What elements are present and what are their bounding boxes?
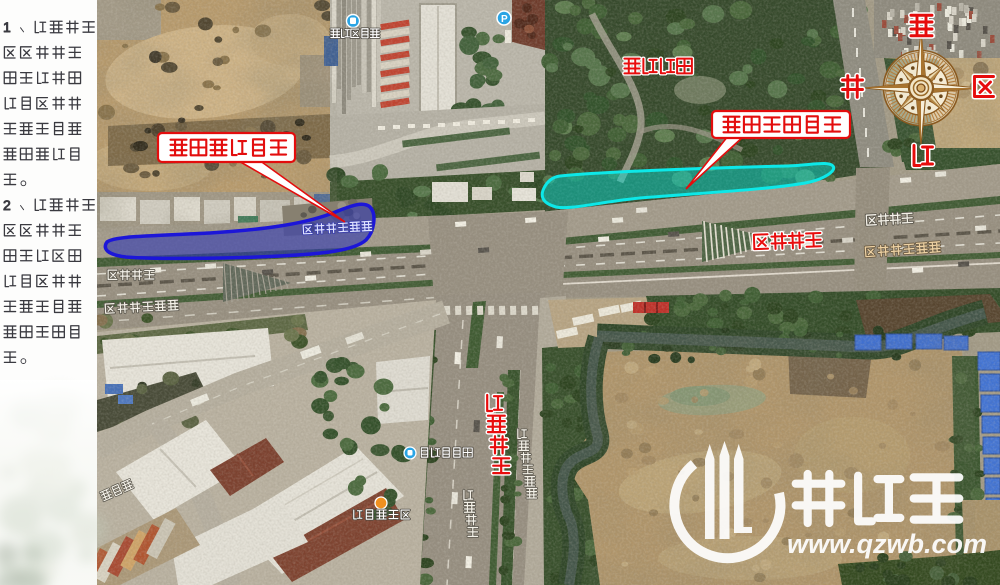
svg-text:www.qzwb.com: www.qzwb.com — [787, 529, 987, 559]
svg-text:1: 1 — [3, 19, 11, 35]
svg-text:2: 2 — [3, 197, 11, 213]
svg-text:P: P — [501, 14, 508, 25]
